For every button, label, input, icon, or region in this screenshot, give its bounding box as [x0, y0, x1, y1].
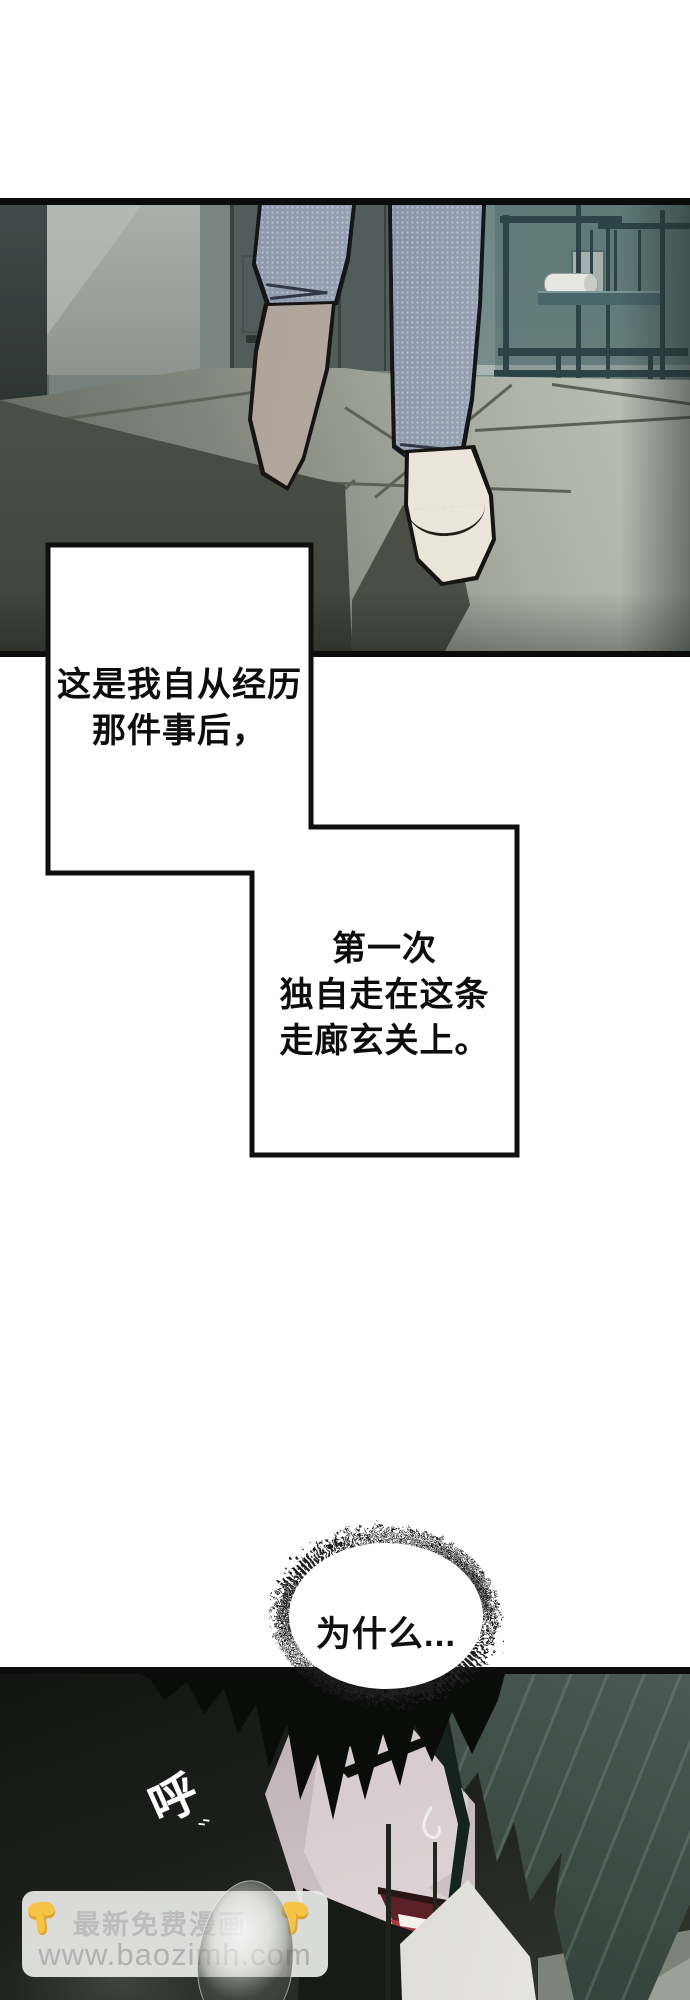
narration-line: 那件事后，: [48, 708, 311, 754]
narration-box-2: 第一次 独自走在这条 走廊玄关上。: [252, 926, 517, 1065]
narration-box-1: 这是我自从经历 那件事后，: [48, 662, 311, 754]
thought-bubble-text: 为什么...: [276, 1606, 496, 1657]
manhwa-page: 这是我自从经历 那件事后， 第一次 独自走在这条 走廊玄关上。: [0, 0, 690, 2000]
narration-line: 这是我自从经历: [48, 662, 311, 708]
narration-line: 第一次: [252, 926, 517, 972]
narration-line: 走廊玄关上。: [252, 1018, 517, 1064]
narration-line: 独自走在这条: [252, 972, 517, 1018]
